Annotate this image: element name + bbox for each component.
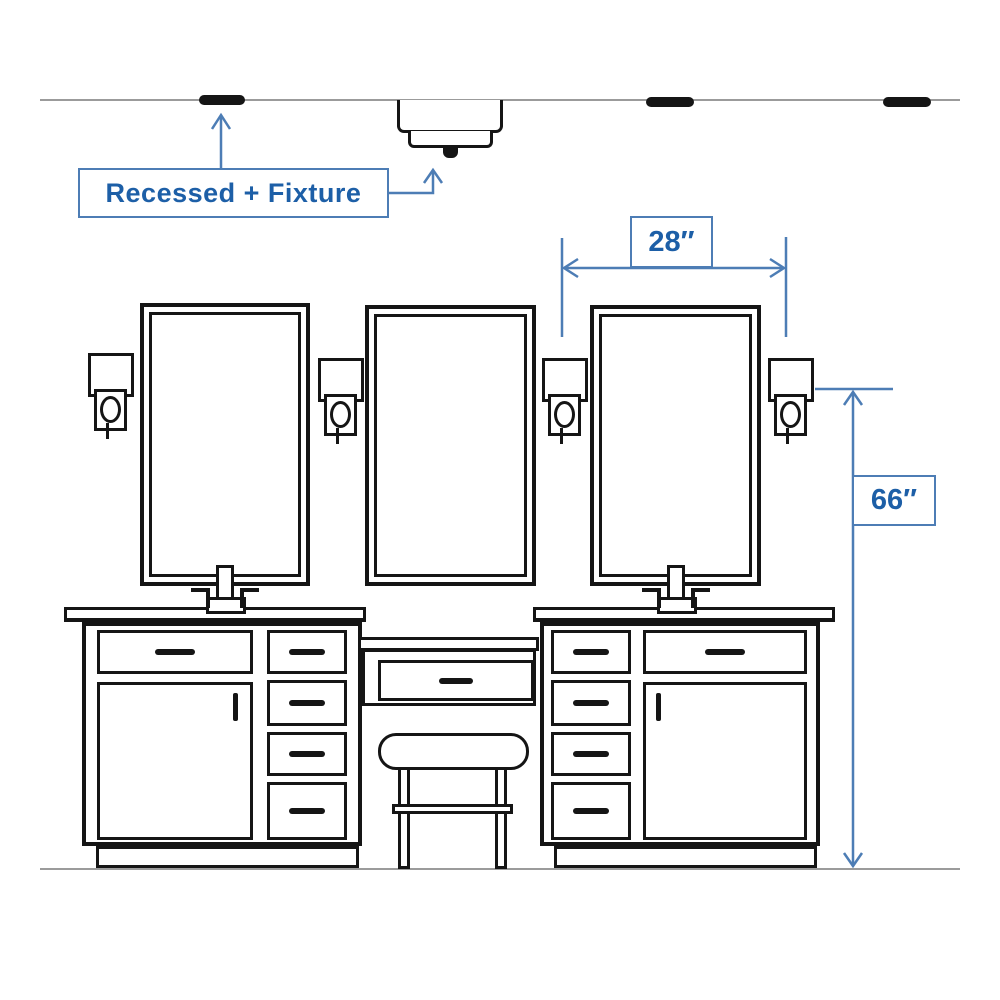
- arrowhead-up-icon: [844, 392, 862, 405]
- mirror-frame-inner: [149, 312, 301, 577]
- mirror-frame-inner: [599, 314, 752, 577]
- vanity-cabinet-left: [82, 622, 362, 846]
- fixture-body: [397, 100, 503, 133]
- cabinet-drawer: [97, 630, 253, 674]
- mirror-left: [140, 303, 310, 586]
- sconce-bulb: [554, 401, 575, 428]
- faucet-icon: [191, 563, 255, 610]
- vanity-cabinet-right: [540, 622, 820, 846]
- sconce-bracket: [548, 394, 581, 436]
- cabinet-drawer: [551, 630, 631, 674]
- fixture-knob: [443, 146, 458, 158]
- cabinet-drawer: [267, 732, 347, 776]
- sconce-bracket: [324, 394, 357, 436]
- mirror-frame-inner: [374, 314, 527, 577]
- mirror-center: [365, 305, 536, 586]
- sconce-icon: [542, 358, 582, 450]
- sconce-icon: [88, 353, 128, 445]
- sconce-stem: [106, 423, 109, 439]
- sconce-bracket: [94, 389, 127, 431]
- cabinet-drawer: [551, 782, 631, 840]
- drawer-handle: [289, 808, 325, 814]
- drawer-handle: [573, 700, 609, 706]
- bridge-drawer-frame: [362, 649, 536, 706]
- sconce-bulb: [100, 396, 121, 423]
- cabinet-drawer: [267, 630, 347, 674]
- drawer-handle: [289, 700, 325, 706]
- arrowhead-up-icon: [212, 115, 230, 129]
- stool-leg: [398, 767, 410, 869]
- callout-arrow-fixture: [389, 172, 433, 193]
- drawer-handle: [705, 649, 745, 655]
- sconce-stem: [560, 428, 563, 444]
- mirror-right: [590, 305, 761, 586]
- stool-icon: [378, 733, 529, 869]
- drawer-handle: [573, 808, 609, 814]
- cabinet-drawer: [267, 782, 347, 840]
- drawer-handle: [289, 751, 325, 757]
- sconce-stem: [786, 428, 789, 444]
- cabinet-drawer: [643, 630, 807, 674]
- faucet-handle-left: [191, 588, 210, 608]
- drawer-handle: [439, 678, 473, 684]
- recessed-light-icon: [646, 97, 694, 107]
- sconce-height-dimension-label: 66″: [852, 475, 936, 526]
- drawer-handle: [155, 649, 195, 655]
- arrowhead-down-icon: [844, 853, 862, 866]
- cabinet-drawer: [267, 680, 347, 726]
- sconce-stem: [336, 428, 339, 444]
- faucet-icon: [642, 563, 706, 610]
- mirror-spacing-value: 28″: [648, 226, 694, 259]
- drawer-handle: [573, 751, 609, 757]
- sconce-height-value: 66″: [871, 484, 917, 517]
- drawer-handle: [289, 649, 325, 655]
- cabinet-drawer: [551, 680, 631, 726]
- stool-leg: [495, 767, 507, 869]
- door-handle: [233, 693, 238, 721]
- sconce-icon: [318, 358, 358, 450]
- cabinet-door: [643, 682, 807, 840]
- sconce-icon: [768, 358, 808, 450]
- mirror-spacing-dimension-label: 28″: [630, 216, 713, 268]
- faucet-handle-right: [240, 588, 259, 608]
- faucet-handle-left: [642, 588, 661, 608]
- vanity-lighting-diagram: Recessed + Fixture 28″ 66″: [0, 0, 1000, 1000]
- ceiling-fixture-icon: [397, 100, 503, 160]
- stool-cushion: [378, 733, 529, 770]
- arrowhead-left-icon: [564, 259, 578, 277]
- sconce-bulb: [330, 401, 351, 428]
- sconce-bracket: [774, 394, 807, 436]
- cabinet-drawer: [378, 660, 534, 701]
- cabinet-drawer: [551, 732, 631, 776]
- arrowhead-right-icon: [770, 259, 784, 277]
- toe-kick-left: [96, 846, 359, 868]
- recessed-fixture-label: Recessed + Fixture: [78, 168, 389, 218]
- door-handle: [656, 693, 661, 721]
- stool-stretcher: [392, 804, 513, 814]
- sconce-bulb: [780, 401, 801, 428]
- recessed-light-icon: [883, 97, 931, 107]
- cabinet-door: [97, 682, 253, 840]
- faucet-handle-right: [691, 588, 710, 608]
- arrowhead-up-icon: [424, 170, 442, 183]
- recessed-light-icon: [199, 95, 245, 105]
- toe-kick-right: [554, 846, 817, 868]
- recessed-fixture-label-text: Recessed + Fixture: [106, 178, 362, 209]
- drawer-handle: [573, 649, 609, 655]
